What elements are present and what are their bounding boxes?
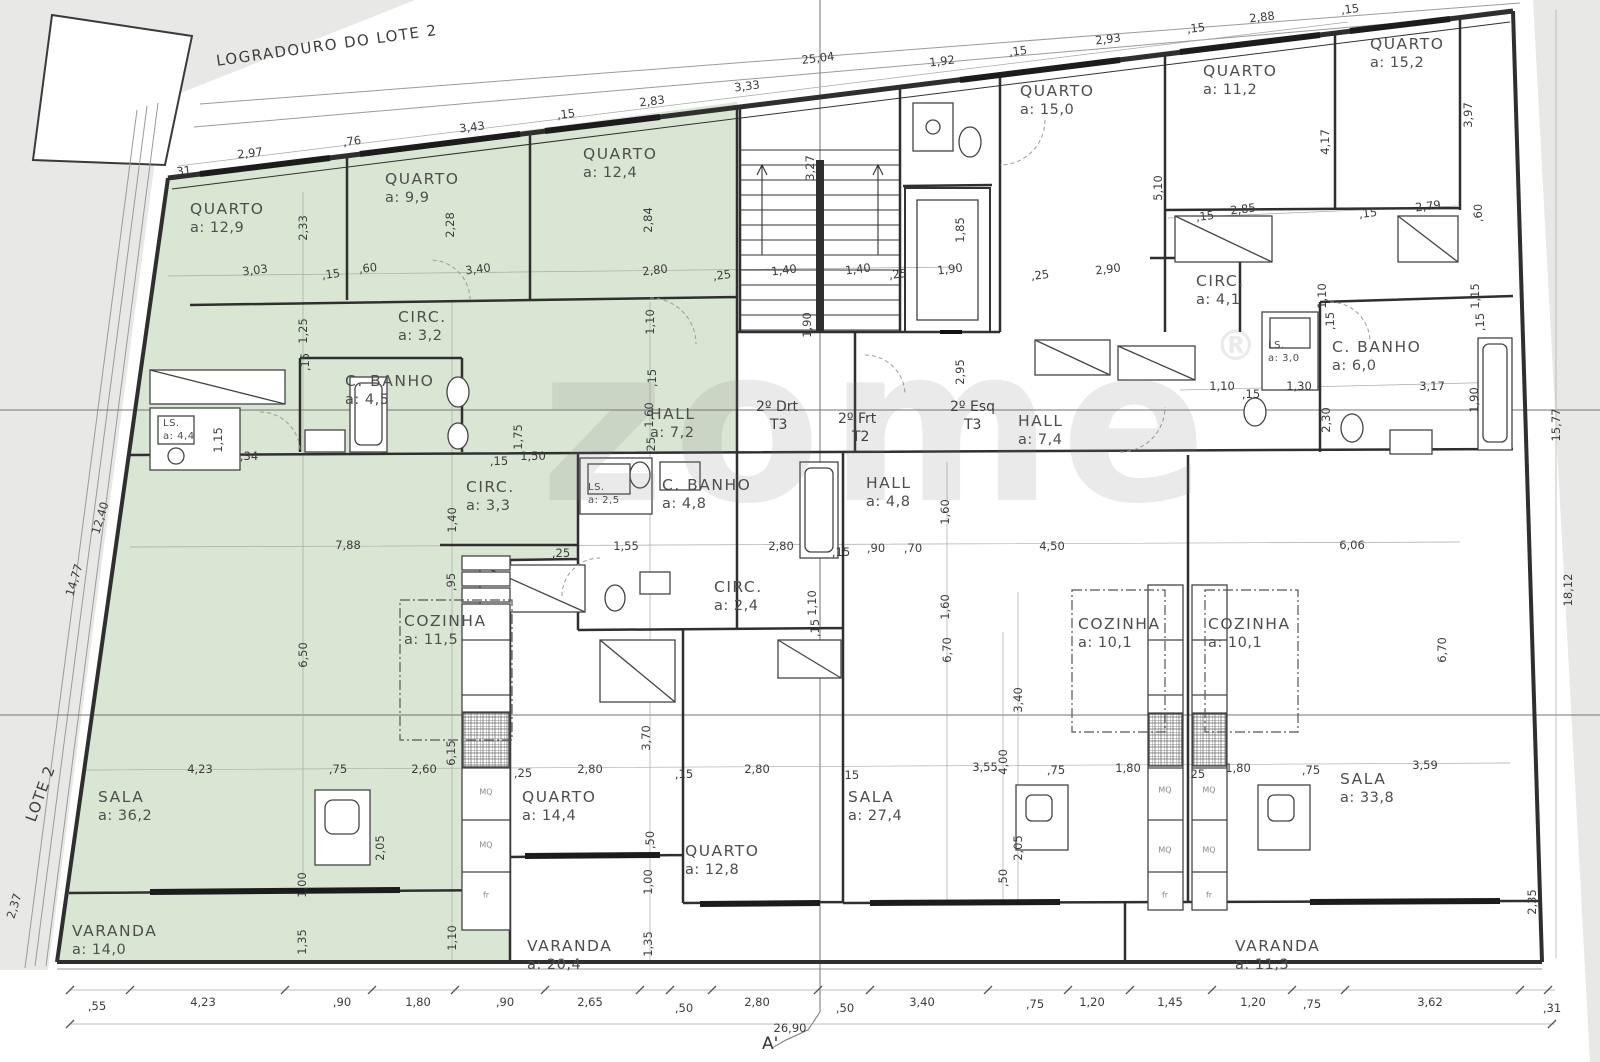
room-area: a: 2,5 <box>588 495 620 508</box>
room-name: VARANDA <box>1235 937 1320 956</box>
dimension-63: ,90 <box>333 995 351 1009</box>
dimension-104: 1,40 <box>445 507 459 533</box>
room-area: a: 15,0 <box>1020 101 1094 119</box>
dimension-137: MQ <box>1158 846 1171 855</box>
dimension-85: 5,10 <box>1151 175 1165 201</box>
room-area: a: 12,9 <box>190 219 264 237</box>
room-name: LS. <box>588 482 620 495</box>
dimension-37: 7,88 <box>335 538 361 552</box>
room-area: a: 11,3 <box>1235 956 1320 974</box>
room-name: QUARTO <box>522 788 596 807</box>
dimension-116: ,50 <box>996 869 1010 887</box>
dimension-47: ,75 <box>329 762 347 776</box>
room-label-10: VARANDAa: 14,0 <box>72 922 157 960</box>
room-name: CIRC. <box>1196 272 1245 291</box>
unit-type: T3 <box>756 416 798 434</box>
dimension-102: 1,15 <box>211 427 225 453</box>
dimension-105: ,95 <box>444 573 458 591</box>
dimension-54: 3,55 <box>972 760 998 774</box>
room-label-12: QUARTOa: 11,2 <box>1203 62 1277 100</box>
dimension-24: ,25 <box>1030 267 1050 283</box>
dimension-52: 2,80 <box>744 762 770 776</box>
dimension-95: ,15 <box>1323 312 1337 330</box>
dimension-57: ,25 <box>1187 767 1205 781</box>
room-area: a: 4,4 <box>163 431 195 444</box>
dimension-124: ,15 <box>808 619 822 637</box>
dimension-72: 1,20 <box>1079 995 1105 1009</box>
dimension-101: ,15 <box>298 353 312 371</box>
dimension-38: ,25 <box>552 546 570 560</box>
dimension-49: ,25 <box>514 766 532 780</box>
dimension-55: ,75 <box>1047 763 1065 777</box>
dimension-74: 1,20 <box>1240 995 1266 1009</box>
room-area: a: 6,0 <box>1332 357 1421 375</box>
dimension-114: 3,70 <box>639 725 653 751</box>
room-area: a: 2,4 <box>714 597 763 615</box>
dimension-113: 1,35 <box>641 931 655 957</box>
dimension-36: ,34 <box>240 449 258 463</box>
bathtub-icon <box>1478 338 1512 450</box>
dimension-43: ,70 <box>904 541 922 555</box>
unit-type: T3 <box>950 416 995 434</box>
room-area: a: 11,5 <box>404 631 487 649</box>
unit-name: 2º Frt <box>838 410 876 428</box>
dimension-97: ,15 <box>1473 313 1487 331</box>
dimension-73: 1,45 <box>1157 995 1183 1009</box>
room-name: QUARTO <box>385 170 459 189</box>
room-area: a: 10,1 <box>1078 634 1161 652</box>
dimension-82: 3,27 <box>803 155 817 181</box>
dimension-92: ,25 <box>644 437 658 455</box>
dimension-35: 1,50 <box>520 449 546 463</box>
dimension-108: 2,05 <box>373 835 387 861</box>
dimension-2: ,76 <box>342 133 362 149</box>
dimension-98: 2,30 <box>1319 407 1333 433</box>
dimension-106: 6,50 <box>296 642 310 668</box>
room-area: a: 33,8 <box>1340 789 1394 807</box>
room-area: a: 7,4 <box>1018 431 1064 449</box>
room-label-0: QUARTOa: 12,9 <box>190 200 264 238</box>
room-label-24: QUARTOa: 14,4 <box>522 788 596 826</box>
dimension-78: 26,90 <box>774 1021 807 1035</box>
bidet-icon <box>448 423 468 449</box>
dimension-51: ,15 <box>675 767 693 781</box>
room-label-4: C. BANHOa: 4,5 <box>345 372 434 410</box>
dimension-120: 6,70 <box>1435 637 1449 663</box>
dimension-ticks <box>66 986 1556 1028</box>
room-area: a: 3,0 <box>1268 353 1300 366</box>
registered-icon: ® <box>1215 321 1265 370</box>
room-label-26: SALAa: 27,4 <box>848 788 902 826</box>
wardrobe-icon <box>150 370 285 404</box>
dimension-119: 6,70 <box>940 637 954 663</box>
dimension-136: MQ <box>1202 786 1215 795</box>
room-name: QUARTO <box>1203 62 1277 81</box>
unit-label-2: 2º EsqT3 <box>950 398 995 434</box>
dimension-139: fr <box>1162 891 1168 900</box>
room-name: SALA <box>1340 770 1394 789</box>
dimension-58: 1,80 <box>1225 761 1251 775</box>
floor-plan-canvas: LOGRADOURO DO LOTE 2 LOTE 2 zome® A' QUA… <box>0 0 1600 1062</box>
dimension-84: 1,90 <box>800 312 814 338</box>
room-label-29: VARANDAa: 11,3 <box>1235 937 1320 975</box>
dimension-86: 4,17 <box>1318 129 1332 155</box>
room-area: a: 27,4 <box>848 807 902 825</box>
dimension-140: fr <box>1206 891 1212 900</box>
room-name: SALA <box>848 788 902 807</box>
room-area: a: 9,9 <box>385 189 459 207</box>
dimension-22: ,25 <box>888 266 908 282</box>
room-name: QUARTO <box>1370 35 1444 54</box>
room-area: a: 20,4 <box>527 956 612 974</box>
dimension-89: 1,10 <box>643 309 657 335</box>
dimension-44: 4,50 <box>1039 539 1065 553</box>
room-label-15: LS.a: 3,0 <box>1268 340 1300 365</box>
room-label-20: LS.a: 2,5 <box>588 482 620 507</box>
dimension-103: 1,75 <box>511 424 525 450</box>
wardrobe-icon <box>600 640 675 702</box>
room-name: C. BANHO <box>345 372 434 391</box>
room-name: COZINHA <box>1078 615 1161 634</box>
room-area: a: 14,4 <box>522 807 596 825</box>
room-name: HALL <box>1018 412 1064 431</box>
dimension-0: ,31 <box>172 163 192 179</box>
dimension-40: 2,80 <box>768 539 794 553</box>
dimension-32: 1,30 <box>1286 379 1312 393</box>
dimension-28: ,15 <box>1358 205 1378 221</box>
dimension-64: 1,80 <box>405 995 431 1009</box>
room-label-13: QUARTOa: 15,2 <box>1370 35 1444 73</box>
dimension-15: ,15 <box>321 266 341 282</box>
dimension-99: 1,90 <box>1467 387 1481 413</box>
room-name: LS. <box>163 418 195 431</box>
washbasin-icon <box>305 430 345 452</box>
dimension-76: 3,62 <box>1417 995 1443 1009</box>
room-name: VARANDA <box>72 922 157 941</box>
room-area: a: 4,8 <box>866 493 912 511</box>
room-name: HALL <box>866 474 912 493</box>
unit-type: T2 <box>838 428 876 446</box>
room-name: QUARTO <box>190 200 264 219</box>
dimension-100: 1,25 <box>296 318 310 344</box>
dimension-128: 2,35 <box>1525 889 1539 915</box>
room-label-16: C. BANHOa: 6,0 <box>1332 338 1421 376</box>
room-label-5: LS.a: 4,4 <box>163 418 195 443</box>
room-label-8: COZINHAa: 11,5 <box>404 612 487 650</box>
dimension-48: 2,60 <box>411 762 437 776</box>
dimension-39: 1,55 <box>613 539 639 553</box>
room-label-17: HALLa: 7,4 <box>1018 412 1064 450</box>
room-name: COZINHA <box>1208 615 1291 634</box>
stove-icon <box>1193 714 1226 766</box>
toilet-icon <box>1341 414 1363 442</box>
room-area: a: 4,1 <box>1196 291 1245 309</box>
wardrobe-icon <box>1175 216 1272 262</box>
dimension-34: ,15 <box>490 454 508 468</box>
room-name: VARANDA <box>527 937 612 956</box>
room-label-23: COZINHAa: 10,1 <box>1208 615 1291 653</box>
room-label-11: QUARTOa: 15,0 <box>1020 82 1094 120</box>
room-label-27: SALAa: 33,8 <box>1340 770 1394 808</box>
dimension-50: 2,80 <box>577 762 603 776</box>
room-name: C. BANHO <box>1332 338 1421 357</box>
dimension-16: ,60 <box>358 260 378 276</box>
dimension-90: ,15 <box>645 369 659 387</box>
dimension-62: 4,23 <box>190 995 216 1009</box>
dimension-61: ,55 <box>88 999 106 1013</box>
entry-door-icon <box>1258 785 1310 850</box>
dimension-81: 2,84 <box>641 207 655 233</box>
dimension-66: 2,65 <box>577 995 603 1009</box>
dimension-19: ,25 <box>712 267 732 283</box>
dimension-133: MQ <box>479 841 492 850</box>
wardrobe-icon <box>778 640 841 678</box>
dimension-88: ,60 <box>1471 204 1485 222</box>
dimension-94: 1,10 <box>1315 283 1329 309</box>
dimension-56: 1,80 <box>1115 761 1141 775</box>
room-area: a: 3,3 <box>466 497 515 515</box>
dimension-41: ,15 <box>832 545 850 559</box>
dimension-123: 1,10 <box>805 590 819 616</box>
room-name: QUARTO <box>1020 82 1094 101</box>
dimension-111: 1,35 <box>295 929 309 955</box>
dimension-70: 3,40 <box>909 995 935 1009</box>
toilet-icon <box>605 585 625 611</box>
room-label-3: CIRC.a: 3,2 <box>398 308 447 346</box>
washbasin-icon <box>913 103 953 151</box>
room-area: a: 3,2 <box>398 327 447 345</box>
toilet-icon <box>447 377 469 407</box>
dimension-134: fr <box>483 891 489 900</box>
room-area: a: 11,2 <box>1203 81 1277 99</box>
dimension-30: 1,10 <box>1209 379 1235 393</box>
wardrobe-icon <box>1398 216 1458 262</box>
room-name: C. BANHO <box>662 476 751 495</box>
room-label-14: CIRC.a: 4,1 <box>1196 272 1245 310</box>
dimension-4: ,15 <box>556 106 576 122</box>
dimension-110: 1,00 <box>295 872 309 898</box>
room-label-28: VARANDAa: 20,4 <box>527 937 612 975</box>
dimension-87: 3,97 <box>1461 102 1475 128</box>
room-label-18: HALLa: 4,8 <box>866 474 912 512</box>
dimension-118: 3,40 <box>1011 687 1025 713</box>
dimension-115: 4,00 <box>996 749 1010 775</box>
dimension-75: ,75 <box>1303 997 1321 1011</box>
dimension-26: ,15 <box>1195 208 1215 224</box>
room-name: CIRC. <box>398 308 447 327</box>
room-area: a: 12,4 <box>583 164 657 182</box>
dimension-91: 1,60 <box>642 402 656 428</box>
dimension-13: ,15 <box>1340 1 1360 17</box>
dimension-107: 6,15 <box>444 740 458 766</box>
dimension-68: 2,80 <box>744 995 770 1009</box>
room-name: LS. <box>1268 340 1300 353</box>
unit-name: 2º Drt <box>756 398 798 416</box>
dimension-65: ,90 <box>496 995 514 1009</box>
neighbor-building <box>33 15 192 165</box>
dimension-80: 2,28 <box>443 212 457 238</box>
room-name: CIRC. <box>466 478 515 497</box>
dimension-96: 1,15 <box>1468 283 1482 309</box>
room-area: a: 36,2 <box>98 807 152 825</box>
room-label-1: QUARTOa: 9,9 <box>385 170 459 208</box>
room-name: SALA <box>98 788 152 807</box>
dimension-59: ,75 <box>1302 763 1320 777</box>
room-name: COZINHA <box>404 612 487 631</box>
room-area: a: 12,8 <box>685 861 759 879</box>
room-label-21: CIRC.a: 2,4 <box>714 578 763 616</box>
dimension-11: ,15 <box>1186 20 1206 36</box>
room-label-6: CIRC.a: 3,3 <box>466 478 515 516</box>
room-label-9: SALAa: 36,2 <box>98 788 152 826</box>
dimension-77: ,31 <box>1543 1001 1561 1015</box>
dimension-33: 3,17 <box>1419 379 1445 393</box>
dimension-138: MQ <box>1202 846 1215 855</box>
unit-label-1: 2º FrtT2 <box>838 410 876 446</box>
dimension-31: ,15 <box>1242 387 1260 401</box>
room-name: QUARTO <box>685 842 759 861</box>
dimension-117: ,50 <box>643 831 657 849</box>
room-label-22: COZINHAa: 10,1 <box>1078 615 1161 653</box>
room-area: a: 4,8 <box>662 495 751 513</box>
section-marker: A' <box>762 1034 778 1054</box>
dimension-93: 2,95 <box>953 359 967 385</box>
dimension-46: 4,23 <box>187 762 213 776</box>
dimension-132: MQ <box>479 788 492 797</box>
entry-door-icon <box>315 790 370 865</box>
dimension-67: ,50 <box>675 1001 693 1015</box>
room-area: a: 15,2 <box>1370 54 1444 72</box>
room-label-25: QUARTOa: 12,8 <box>685 842 759 880</box>
washbasin-icon <box>640 572 670 594</box>
washbasin-icon <box>1390 430 1432 454</box>
dimension-42: ,90 <box>867 541 885 555</box>
dimension-71: ,75 <box>1026 997 1044 1011</box>
dimension-126: 15,77 <box>1549 409 1563 442</box>
dimension-127: 18,12 <box>1561 574 1575 607</box>
room-area: a: 10,1 <box>1208 634 1291 652</box>
dimension-109: 2,05 <box>1011 835 1025 861</box>
unit-name: 2º Esq <box>950 398 995 416</box>
dimension-60: 3,59 <box>1412 758 1438 772</box>
dimension-122: 1,60 <box>938 594 952 620</box>
dimension-69: ,50 <box>836 1001 854 1015</box>
room-name: QUARTO <box>583 145 657 164</box>
dimension-9: ,15 <box>1008 43 1028 59</box>
dimension-125: 1,10 <box>445 925 459 951</box>
kitchen-counter <box>462 604 510 930</box>
dimension-83: 1,85 <box>953 217 967 243</box>
room-name: CIRC. <box>714 578 763 597</box>
dimension-135: MQ <box>1158 786 1171 795</box>
dimension-121: 1,60 <box>938 499 952 525</box>
dimension-79: 2,33 <box>296 215 310 241</box>
dimension-53: ,15 <box>841 768 859 782</box>
room-area: a: 4,5 <box>345 391 434 409</box>
unit-label-0: 2º DrtT3 <box>756 398 798 434</box>
toilet-icon <box>959 127 981 157</box>
room-area: a: 14,0 <box>72 941 157 959</box>
dimension-45: 6,06 <box>1339 538 1365 552</box>
dimension-112: 1,00 <box>641 869 655 895</box>
room-label-2: QUARTOa: 12,4 <box>583 145 657 183</box>
room-label-19: C. BANHOa: 4,8 <box>662 476 751 514</box>
room-name: HALL <box>650 405 696 424</box>
